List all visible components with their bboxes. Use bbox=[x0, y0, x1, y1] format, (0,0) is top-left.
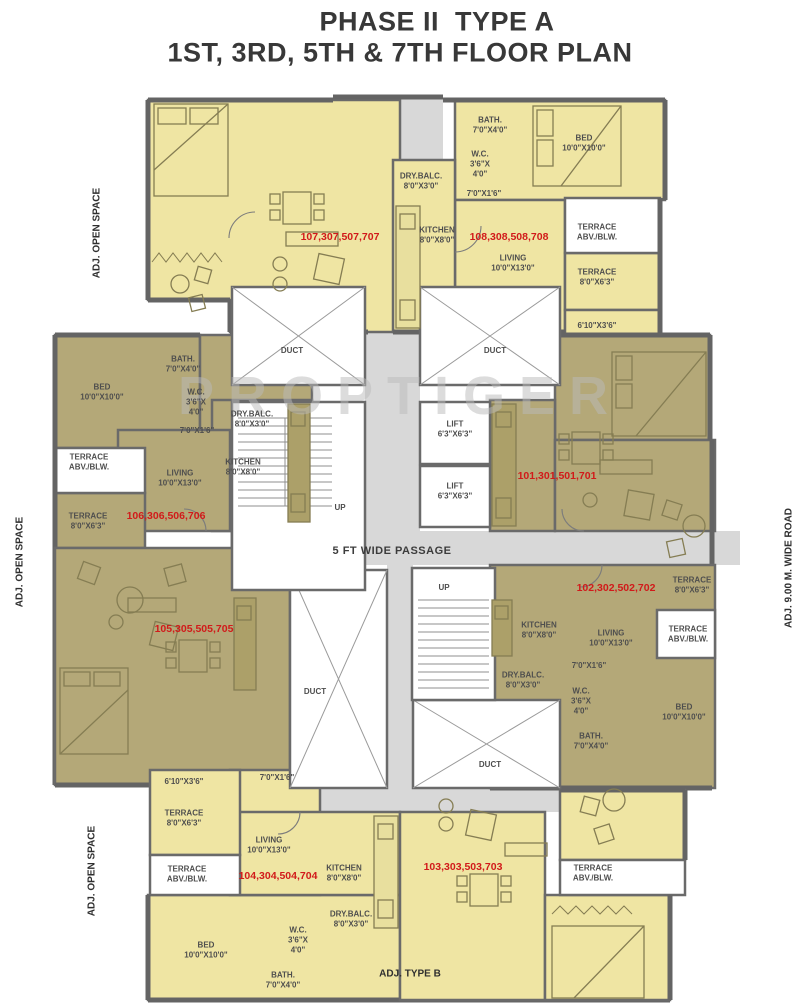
units-3-rooms-passage7: 7'0"X1'6" bbox=[559, 661, 619, 671]
units-4-rooms-bed-dims: 10'0"X10'0" bbox=[67, 392, 137, 402]
units-6-rooms-bath: BATH.7'0"X4'0" bbox=[253, 970, 313, 990]
units-3-rooms-bed: BED10'0"X10'0" bbox=[649, 702, 719, 722]
units-1-rooms-drybalc-name: DRY.BALC. bbox=[386, 171, 456, 181]
duct-label-top-left: DUCT bbox=[281, 346, 303, 356]
units-1-rooms-strip610: 6'10"X3'6" bbox=[562, 321, 632, 331]
units-6-rooms-kitchen-name: KITCHEN bbox=[314, 863, 374, 873]
units-1-rooms-bed: BED10'0"X10'0" bbox=[549, 133, 619, 153]
duct-label-bottom-right: DUCT bbox=[479, 760, 501, 770]
units-1-rooms-passage7-dims: 7'0"X1'6" bbox=[454, 189, 514, 199]
units-3-rooms-drybalc-dims: 8'0"X3'0" bbox=[491, 680, 555, 690]
units-6-rooms-living: LIVING10'0"X13'0" bbox=[234, 835, 304, 855]
units-3-rooms-living-dims: 10'0"X13'0" bbox=[576, 638, 646, 648]
unit-106-number: 106,306,506,706 bbox=[127, 510, 206, 522]
units-1-rooms-drybalc: DRY.BALC.8'0"X3'0" bbox=[386, 171, 456, 191]
units-6-rooms-living-dims: 10'0"X13'0" bbox=[234, 845, 304, 855]
units-1-rooms-terrace: TERRACE8'0"X6'3" bbox=[562, 267, 632, 287]
units-1-rooms-kitchen-dims: 8'0"X8'0" bbox=[407, 235, 467, 245]
units-4-rooms-drybalc-dims: 8'0"X3'0" bbox=[220, 419, 284, 429]
units-4-rooms-passage7-dims: 7'0"X1'6" bbox=[167, 426, 227, 436]
units-4-rooms-living-dims: 10'0"X13'0" bbox=[145, 478, 215, 488]
lift-1-label-name: LIFT bbox=[430, 419, 480, 429]
adj-type-b-label: ADJ. TYPE B bbox=[379, 969, 441, 980]
units-4-rooms-terrace: TERRACE8'0"X6'3" bbox=[58, 511, 118, 531]
units-4-rooms-drybalc: DRY.BALC.8'0"X3'0" bbox=[220, 409, 284, 429]
unit-103-number: 103,303,503,703 bbox=[424, 861, 503, 873]
units-6-rooms-terrace_abv-dims: ABV./BLW. bbox=[152, 874, 222, 884]
unit-105-number: 105,305,505,705 bbox=[155, 623, 234, 635]
units-6-rooms-strip610: 6'10"X3'6" bbox=[149, 777, 219, 787]
units-3-rooms-bath-name: BATH. bbox=[561, 731, 621, 741]
units-4-rooms-bath-name: BATH. bbox=[153, 354, 213, 364]
lift-1-label-dims: 6'3"X6'3" bbox=[430, 429, 480, 439]
units-3-rooms-bed-dims: 10'0"X10'0" bbox=[649, 712, 719, 722]
units-4-rooms-wc: W.C.3'6"X 4'0" bbox=[179, 387, 213, 416]
units-6-rooms-bath-dims: 7'0"X4'0" bbox=[253, 980, 313, 990]
units-1-rooms-living: LIVING10'0"X13'0" bbox=[478, 253, 548, 273]
adj-open-space-label-top-left: ADJ. OPEN SPACE bbox=[92, 188, 103, 278]
units-6-rooms-terrace-dims: 8'0"X6'3" bbox=[154, 818, 214, 828]
unit-104-number: 104,304,504,704 bbox=[239, 870, 318, 882]
adj-road-label-right: ADJ. 9.00 M. WIDE ROAD bbox=[784, 508, 795, 628]
units-6-rooms-wc: W.C.3'6"X 4'0" bbox=[281, 925, 315, 954]
units-4-rooms-bath-dims: 7'0"X4'0" bbox=[153, 364, 213, 374]
units-4-rooms-bed-name: BED bbox=[67, 382, 137, 392]
units-1-rooms-terrace_abv: TERRACEABV./BLW. bbox=[562, 222, 632, 242]
units-1-rooms-bath-dims: 7'0"X4'0" bbox=[460, 125, 520, 135]
units-4-rooms-bed: BED10'0"X10'0" bbox=[67, 382, 137, 402]
units-6-rooms-terrace: TERRACE8'0"X6'3" bbox=[154, 808, 214, 828]
units-1-rooms-bath-name: BATH. bbox=[460, 115, 520, 125]
units-6-rooms-drybalc: DRY.BALC.8'0"X3'0" bbox=[319, 909, 383, 929]
floor-plan: PROPTIGER PHASE II TYPE A 1ST, 3RD, 5TH … bbox=[0, 0, 800, 1003]
units-3-rooms-living-name: LIVING bbox=[576, 628, 646, 638]
units-4-rooms-terrace_abv: TERRACEABV./BLW. bbox=[54, 452, 124, 472]
units-4-rooms-kitchen-name: KITCHEN bbox=[213, 457, 273, 467]
units-4-rooms-living-name: LIVING bbox=[145, 468, 215, 478]
units-1-rooms-terrace-name: TERRACE bbox=[562, 267, 632, 277]
units-4-rooms-living: LIVING10'0"X13'0" bbox=[145, 468, 215, 488]
units-3-rooms-terrace_abv-dims: ABV./BLW. bbox=[653, 634, 723, 644]
units-1-rooms-wc-name: W.C. bbox=[463, 149, 497, 159]
units-6-rooms-terrace-name: TERRACE bbox=[154, 808, 214, 818]
units-4-rooms-passage7: 7'0"X1'6" bbox=[167, 426, 227, 436]
units-6-rooms-kitchen-dims: 8'0"X8'0" bbox=[314, 873, 374, 883]
units-3-rooms-bath-dims: 7'0"X4'0" bbox=[561, 741, 621, 751]
units-1-rooms-terrace-dims: 8'0"X6'3" bbox=[562, 277, 632, 287]
units-6-rooms-drybalc-name: DRY.BALC. bbox=[319, 909, 383, 919]
duct-label-bottom-left: DUCT bbox=[304, 687, 326, 697]
units-1-rooms-kitchen-name: KITCHEN bbox=[407, 225, 467, 235]
units-6-rooms-strip610-dims: 6'10"X3'6" bbox=[149, 777, 219, 787]
adj-open-space-label-bottom-left: ADJ. OPEN SPACE bbox=[87, 826, 98, 916]
room-labels-layer: 107,307,507,707BATH.7'0"X4'0"W.C.3'6"X 4… bbox=[0, 0, 800, 1003]
units-1-rooms-kitchen: KITCHEN8'0"X8'0" bbox=[407, 225, 467, 245]
units-1-rooms-living-name: LIVING bbox=[478, 253, 548, 263]
units-1-rooms-passage7: 7'0"X1'6" bbox=[454, 189, 514, 199]
units-3-rooms-bath: BATH.7'0"X4'0" bbox=[561, 731, 621, 751]
units-6-rooms-kitchen: KITCHEN8'0"X8'0" bbox=[314, 863, 374, 883]
units-3-rooms-terrace-dims: 8'0"X6'3" bbox=[662, 585, 722, 595]
units-1-rooms-wc-dims: 3'6"X 4'0" bbox=[463, 159, 497, 179]
units-6-rooms-bed-name: BED bbox=[171, 940, 241, 950]
units-1-rooms-strip610-dims: 6'10"X3'6" bbox=[562, 321, 632, 331]
adj-open-space-label-middle-left: ADJ. OPEN SPACE bbox=[15, 517, 26, 607]
units-1-rooms-terrace_abv-dims: ABV./BLW. bbox=[562, 232, 632, 242]
units-6-rooms-passage7-dims: 7'0"X1'6" bbox=[247, 773, 307, 783]
stairs-up-label-top: UP bbox=[334, 503, 345, 513]
duct-label-top-right: DUCT bbox=[484, 346, 506, 356]
units-3-rooms-drybalc-name: DRY.BALC. bbox=[491, 670, 555, 680]
units-6-rooms-wc-name: W.C. bbox=[281, 925, 315, 935]
units-6-rooms-bath-name: BATH. bbox=[253, 970, 313, 980]
units-3-rooms-terrace_abv: TERRACEABV./BLW. bbox=[653, 624, 723, 644]
units-1-rooms-drybalc-dims: 8'0"X3'0" bbox=[386, 181, 456, 191]
units-6-rooms-drybalc-dims: 8'0"X3'0" bbox=[319, 919, 383, 929]
unit-101-number: 101,301,501,701 bbox=[518, 470, 597, 482]
units-1-rooms-bed-name: BED bbox=[549, 133, 619, 143]
units-4-rooms-terrace-name: TERRACE bbox=[58, 511, 118, 521]
passage-label: 5 FT WIDE PASSAGE bbox=[333, 545, 452, 557]
title-line-2: 1ST, 3RD, 5TH & 7TH FLOOR PLAN bbox=[167, 38, 632, 69]
units-4-rooms-terrace-dims: 8'0"X6'3" bbox=[58, 521, 118, 531]
units-4-rooms-terrace_abv-dims: ABV./BLW. bbox=[54, 462, 124, 472]
units-1-rooms-bath: BATH.7'0"X4'0" bbox=[460, 115, 520, 135]
units-3-rooms-wc: W.C.3'6"X 4'0" bbox=[564, 686, 598, 715]
units-1-rooms-terrace_abv-name: TERRACE bbox=[562, 222, 632, 232]
units-1-rooms-wc: W.C.3'6"X 4'0" bbox=[463, 149, 497, 178]
units-3-rooms-kitchen: KITCHEN8'0"X8'0" bbox=[509, 620, 569, 640]
stairs-up-label-bottom: UP bbox=[438, 583, 449, 593]
units-6-rooms-passage7: 7'0"X1'6" bbox=[247, 773, 307, 783]
units-3-rooms-kitchen-dims: 8'0"X8'0" bbox=[509, 630, 569, 640]
units-6-rooms-bed-dims: 10'0"X10'0" bbox=[171, 950, 241, 960]
units-4-rooms-kitchen-dims: 8'0"X8'0" bbox=[213, 467, 273, 477]
lift-2-label-name: LIFT bbox=[430, 481, 480, 491]
units-3-rooms-living: LIVING10'0"X13'0" bbox=[576, 628, 646, 648]
units-6-rooms-living-name: LIVING bbox=[234, 835, 304, 845]
units-1-rooms-living-dims: 10'0"X13'0" bbox=[478, 263, 548, 273]
units-4-rooms-drybalc-name: DRY.BALC. bbox=[220, 409, 284, 419]
lift-2-label-dims: 6'3"X6'3" bbox=[430, 491, 480, 501]
units-7-rooms-terrace_abv-dims: ABV./BLW. bbox=[558, 873, 628, 883]
units-6-rooms-wc-dims: 3'6"X 4'0" bbox=[281, 935, 315, 955]
units-3-rooms-passage7-dims: 7'0"X1'6" bbox=[559, 661, 619, 671]
units-4-rooms-bath: BATH.7'0"X4'0" bbox=[153, 354, 213, 374]
units-3-rooms-terrace: TERRACE8'0"X6'3" bbox=[662, 575, 722, 595]
unit-108-number: 108,308,508,708 bbox=[470, 231, 549, 243]
units-3-rooms-terrace_abv-name: TERRACE bbox=[653, 624, 723, 634]
units-7-rooms-terrace_abv: TERRACEABV./BLW. bbox=[558, 863, 628, 883]
units-3-rooms-drybalc: DRY.BALC.8'0"X3'0" bbox=[491, 670, 555, 690]
units-6-rooms-terrace_abv: TERRACEABV./BLW. bbox=[152, 864, 222, 884]
units-3-rooms-kitchen-name: KITCHEN bbox=[509, 620, 569, 630]
units-3-rooms-bed-name: BED bbox=[649, 702, 719, 712]
units-3-rooms-terrace-name: TERRACE bbox=[662, 575, 722, 585]
units-4-rooms-wc-dims: 3'6"X 4'0" bbox=[179, 397, 213, 417]
units-7-rooms-terrace_abv-name: TERRACE bbox=[558, 863, 628, 873]
units-6-rooms-terrace_abv-name: TERRACE bbox=[152, 864, 222, 874]
units-3-rooms-wc-name: W.C. bbox=[564, 686, 598, 696]
units-4-rooms-terrace_abv-name: TERRACE bbox=[54, 452, 124, 462]
units-4-rooms-kitchen: KITCHEN8'0"X8'0" bbox=[213, 457, 273, 477]
units-3-rooms-wc-dims: 3'6"X 4'0" bbox=[564, 696, 598, 716]
unit-107-number: 107,307,507,707 bbox=[301, 231, 380, 243]
units-1-rooms-bed-dims: 10'0"X10'0" bbox=[549, 143, 619, 153]
units-6-rooms-bed: BED10'0"X10'0" bbox=[171, 940, 241, 960]
title-line-1: PHASE II TYPE A bbox=[319, 7, 554, 38]
lift-1-label: LIFT6'3"X6'3" bbox=[430, 419, 480, 439]
lift-2-label: LIFT6'3"X6'3" bbox=[430, 481, 480, 501]
units-4-rooms-wc-name: W.C. bbox=[179, 387, 213, 397]
unit-102-number: 102,302,502,702 bbox=[577, 582, 656, 594]
